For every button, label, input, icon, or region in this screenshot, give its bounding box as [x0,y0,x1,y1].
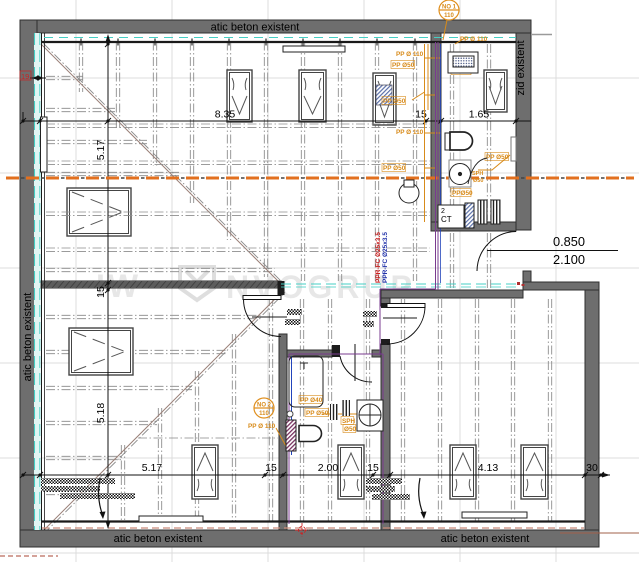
svg-text:NO 1: NO 1 [442,5,457,11]
svg-text:atic beton existent: atic beton existent [441,533,530,545]
svg-text:SPH: SPH [342,418,356,425]
svg-text:PP Ø 110: PP Ø 110 [248,423,276,430]
svg-text:PP Ø50: PP Ø50 [383,165,406,172]
svg-text:15: 15 [367,462,379,474]
svg-text:110: 110 [444,13,454,19]
svg-text:0.850: 0.850 [553,234,585,249]
svg-text:CT: CT [441,215,452,224]
svg-text:PP Ø40: PP Ø40 [300,397,323,404]
svg-text:PPR-FC Ø25x3.5: PPR-FC Ø25x3.5 [382,232,389,283]
svg-text:4.13: 4.13 [478,462,499,474]
svg-text:NO 2: NO 2 [257,403,272,409]
svg-text:8.35: 8.35 [215,109,236,121]
svg-text:15: 15 [415,109,427,121]
svg-text:PPØ50: PPØ50 [452,190,473,197]
svg-text:2.00: 2.00 [318,462,339,474]
svg-text:15: 15 [95,286,107,298]
svg-text:PP Ø50: PP Ø50 [383,98,406,105]
svg-text:30: 30 [586,462,598,474]
svg-text:PP Ø50: PP Ø50 [306,410,329,417]
svg-text:PP Ø50: PP Ø50 [392,62,415,69]
svg-text:5.17: 5.17 [142,462,163,474]
svg-text:zid existent: zid existent [515,40,527,95]
svg-text:5.18: 5.18 [95,403,107,424]
svg-text:5.17: 5.17 [95,140,107,161]
svg-text:Ø50: Ø50 [344,426,357,433]
svg-text:atic beton existent: atic beton existent [114,533,203,545]
svg-text:PPR-FC Ø25x3.5: PPR-FC Ø25x3.5 [375,232,382,283]
svg-text:PP Ø 110: PP Ø 110 [396,129,424,136]
svg-text:15: 15 [265,462,277,474]
svg-text:110: 110 [259,411,269,417]
svg-text:PP Ø 110: PP Ø 110 [396,51,424,58]
svg-text:2: 2 [441,208,445,215]
svg-text:atic beton existent: atic beton existent [22,293,34,382]
svg-text:atic beton existent: atic beton existent [211,22,300,34]
svg-text:Ø50: Ø50 [473,178,483,184]
svg-text:PP Ø 110: PP Ø 110 [460,36,488,43]
svg-text:2.100: 2.100 [553,252,585,267]
svg-text:1.65: 1.65 [469,109,490,121]
svg-text:SPH: SPH [472,171,483,177]
svg-text:PP Ø50: PP Ø50 [486,154,509,161]
